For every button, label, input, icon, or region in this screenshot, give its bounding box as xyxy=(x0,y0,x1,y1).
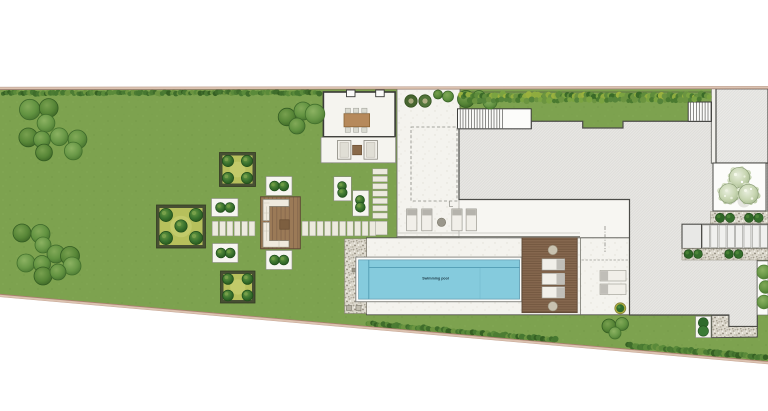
svg-text:Swimming pool: Swimming pool xyxy=(422,277,449,281)
